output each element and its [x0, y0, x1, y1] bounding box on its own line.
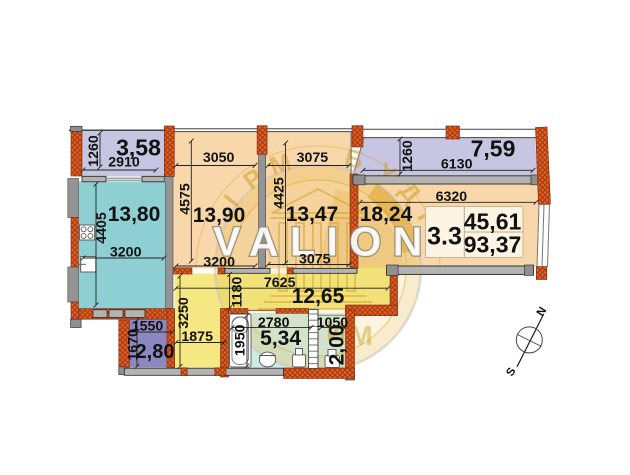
svg-text:2,00: 2,00: [326, 324, 349, 365]
svg-text:3,58: 3,58: [116, 135, 161, 161]
svg-text:13,90: 13,90: [193, 204, 246, 227]
svg-text:2,80: 2,80: [136, 341, 175, 363]
svg-text:13,47: 13,47: [286, 203, 339, 226]
svg-text:3050: 3050: [203, 150, 235, 166]
svg-text:13,80: 13,80: [108, 203, 161, 226]
svg-text:18,24: 18,24: [360, 203, 413, 226]
svg-text:3200: 3200: [110, 244, 142, 260]
svg-text:4575: 4575: [178, 183, 194, 215]
svg-text:1260: 1260: [86, 135, 102, 167]
svg-text:12,65: 12,65: [292, 285, 345, 308]
svg-text:3.3: 3.3: [427, 223, 462, 251]
svg-text:1950: 1950: [233, 324, 249, 356]
svg-text:1180: 1180: [230, 277, 246, 308]
svg-text:5,34: 5,34: [260, 327, 301, 350]
svg-text:3075: 3075: [299, 252, 331, 268]
svg-text:3200: 3200: [203, 254, 235, 270]
svg-text:7,59: 7,59: [471, 136, 516, 162]
svg-text:1260: 1260: [400, 140, 416, 172]
svg-text:6130: 6130: [441, 156, 473, 172]
svg-text:3075: 3075: [297, 150, 329, 166]
svg-text:3250: 3250: [176, 297, 192, 329]
svg-text:6320: 6320: [436, 189, 468, 205]
svg-text:1875: 1875: [181, 329, 213, 345]
svg-text:93,37: 93,37: [464, 232, 522, 258]
